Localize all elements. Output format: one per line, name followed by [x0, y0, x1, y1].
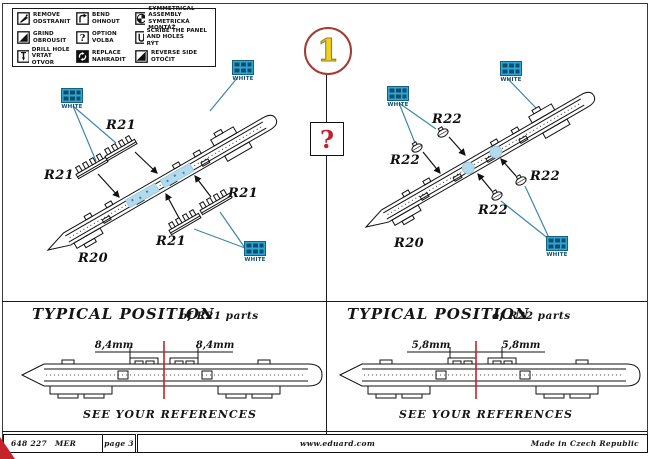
- legend-label-cz: ODSTRANIT: [33, 19, 70, 25]
- body-part-label: R20: [78, 251, 108, 266]
- footer-divider: [2, 431, 647, 432]
- legend-label-cz: OBROUSIT: [33, 38, 66, 44]
- pe-color-callout: WHITE: [497, 61, 525, 83]
- color-note: WHITE: [232, 76, 253, 82]
- part-label: R22: [432, 112, 462, 127]
- option-icon: ?: [76, 31, 89, 44]
- catalog-number: 648 227: [11, 439, 47, 448]
- product-name: MER: [55, 439, 76, 448]
- pe-part: [102, 134, 137, 161]
- legend-label-en: SCRIBE THE PANEL AND HOLES: [147, 28, 213, 40]
- color-note: WHITE: [546, 252, 567, 258]
- footer-catalog-cell: 648 227 MER: [3, 434, 107, 453]
- legend-item-bend: BENDOHNOUT: [72, 12, 131, 25]
- scribe-icon: [135, 31, 144, 44]
- pe-fret-thumbnail-icon: [244, 241, 266, 256]
- corner-fold-mark: [0, 437, 15, 459]
- footer-page-cell: page 3: [102, 434, 136, 453]
- part-label: R21: [228, 186, 258, 201]
- footer-info-cell: www.eduard.com Made in Czech Republic: [137, 434, 648, 453]
- part-label: R22: [530, 169, 560, 184]
- dimension-label: 8,4mm: [94, 340, 134, 351]
- references-note: SEE YOUR REFERENCES: [60, 408, 280, 421]
- color-note: WHITE: [387, 102, 408, 108]
- legend-label-cz: OHNOUT: [92, 19, 120, 25]
- instruction-sheet-page: REMOVEODSTRANIT BENDOHNOUT SYMMETRICAL A…: [0, 0, 650, 459]
- pe-fret-thumbnail-icon: [387, 86, 409, 101]
- legend-label-cz: RÝT: [147, 41, 213, 47]
- pe-color-callout: WHITE: [241, 241, 269, 263]
- pe-fret-thumbnail-icon: [546, 236, 568, 251]
- color-note: WHITE: [61, 104, 82, 110]
- page-number: page 3: [104, 439, 134, 448]
- website-link: www.eduard.com: [300, 439, 375, 448]
- pe-fret-thumbnail-icon: [232, 60, 254, 75]
- legend-label-en: OPTION: [92, 31, 117, 37]
- color-note: WHITE: [500, 77, 521, 83]
- option-question-mark: ?: [320, 125, 334, 154]
- part-label: R22: [390, 153, 420, 168]
- upper-lower-divider: [2, 301, 647, 302]
- step-number: 1: [317, 33, 339, 69]
- dimension-label: 8,4mm: [195, 340, 235, 351]
- pe-part: [73, 152, 108, 179]
- legend-item-grind: GRINDOBROUSIT: [13, 31, 72, 44]
- part-label: R22: [478, 203, 508, 218]
- dimension-label: 5,8mm: [411, 340, 451, 351]
- part-label: R21: [44, 168, 74, 183]
- diagram-right-artwork: [330, 55, 647, 301]
- part-label: R21: [106, 118, 136, 133]
- pe-part: [197, 188, 232, 215]
- legend-item-option: ? OPTIONVOLBA: [72, 31, 131, 44]
- svg-text:?: ?: [80, 33, 86, 44]
- made-in-note: Made in Czech Republic: [531, 439, 639, 448]
- step-number-badge: 1: [304, 27, 352, 75]
- pe-part: [409, 140, 423, 154]
- remove-icon: [17, 12, 30, 25]
- dimension-label: 5,8mm: [501, 340, 541, 351]
- legend-item-remove: REMOVEODSTRANIT: [13, 12, 72, 25]
- pe-part: [166, 208, 201, 235]
- typical-position-subtitle: of R22 parts: [492, 310, 571, 322]
- pe-color-callout: WHITE: [384, 86, 412, 108]
- pe-color-callout: WHITE: [58, 88, 86, 110]
- typical-position-subtitle: of R21 parts: [180, 310, 259, 322]
- body-part-label: R20: [394, 236, 424, 251]
- bend-icon: [76, 12, 89, 25]
- legend-item-scribe: SCRIBE THE PANEL AND HOLESRÝT: [131, 28, 213, 46]
- grind-icon: [17, 31, 30, 44]
- symmetrical-assembly-icon: [135, 12, 145, 25]
- color-note: WHITE: [244, 257, 265, 263]
- part-label: R21: [156, 234, 186, 249]
- pe-color-callout: WHITE: [543, 236, 571, 258]
- pe-color-callout: WHITE: [229, 60, 257, 82]
- legend-label-cz: VOLBA: [92, 38, 117, 44]
- pe-fret-thumbnail-icon: [500, 61, 522, 76]
- pe-part: [435, 125, 449, 139]
- legend-item-symmetrical-assembly: SYMMETRICAL ASSEMBLYSYMETRICKÁ MONTÁŽ: [131, 6, 213, 30]
- legend-label-en: SYMMETRICAL ASSEMBLY: [148, 6, 213, 18]
- references-note: SEE YOUR REFERENCES: [376, 408, 596, 421]
- option-mark-box: ?: [310, 122, 344, 156]
- pe-fret-thumbnail-icon: [61, 88, 83, 103]
